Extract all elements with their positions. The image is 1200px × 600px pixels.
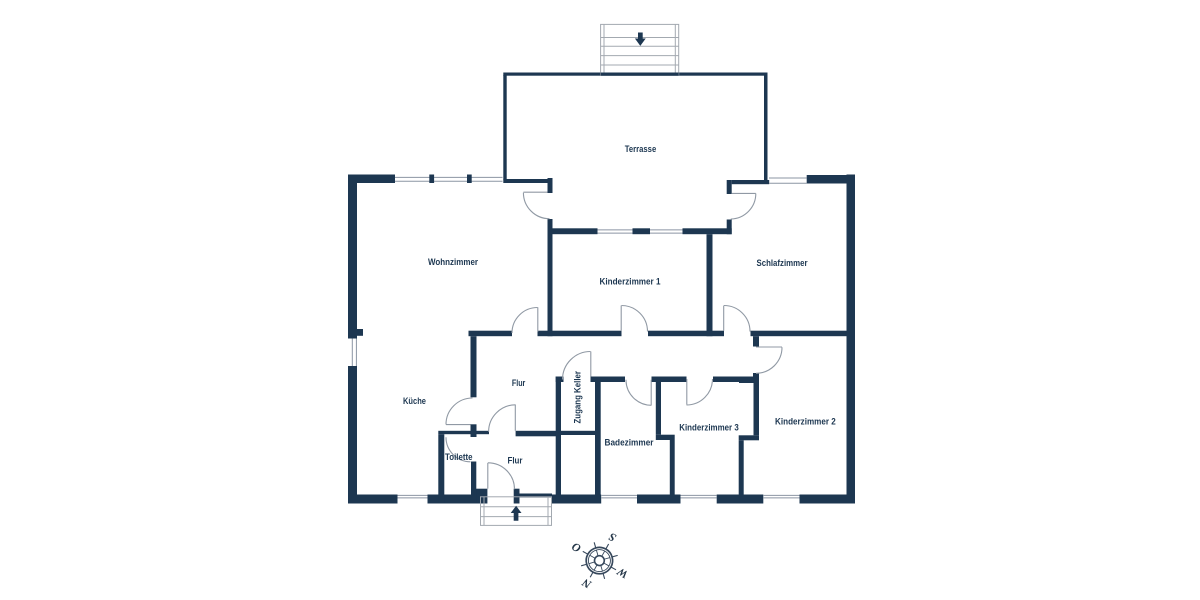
svg-text:Kinderzimmer 1: Kinderzimmer 1 bbox=[600, 277, 661, 287]
svg-text:Wohnzimmer: Wohnzimmer bbox=[428, 257, 478, 267]
svg-text:Badezimmer: Badezimmer bbox=[605, 438, 654, 448]
svg-text:Kinderzimmer 2: Kinderzimmer 2 bbox=[775, 417, 836, 427]
svg-text:Toilette: Toilette bbox=[445, 452, 473, 462]
svg-text:Flur: Flur bbox=[508, 456, 523, 466]
svg-text:Schlafzimmer: Schlafzimmer bbox=[757, 258, 808, 268]
svg-text:Terrasse: Terrasse bbox=[625, 144, 657, 154]
svg-text:Kinderzimmer 3: Kinderzimmer 3 bbox=[679, 423, 739, 433]
svg-text:Küche: Küche bbox=[403, 396, 426, 406]
svg-text:Flur: Flur bbox=[512, 378, 526, 388]
svg-text:Zugang Keller: Zugang Keller bbox=[572, 371, 582, 424]
